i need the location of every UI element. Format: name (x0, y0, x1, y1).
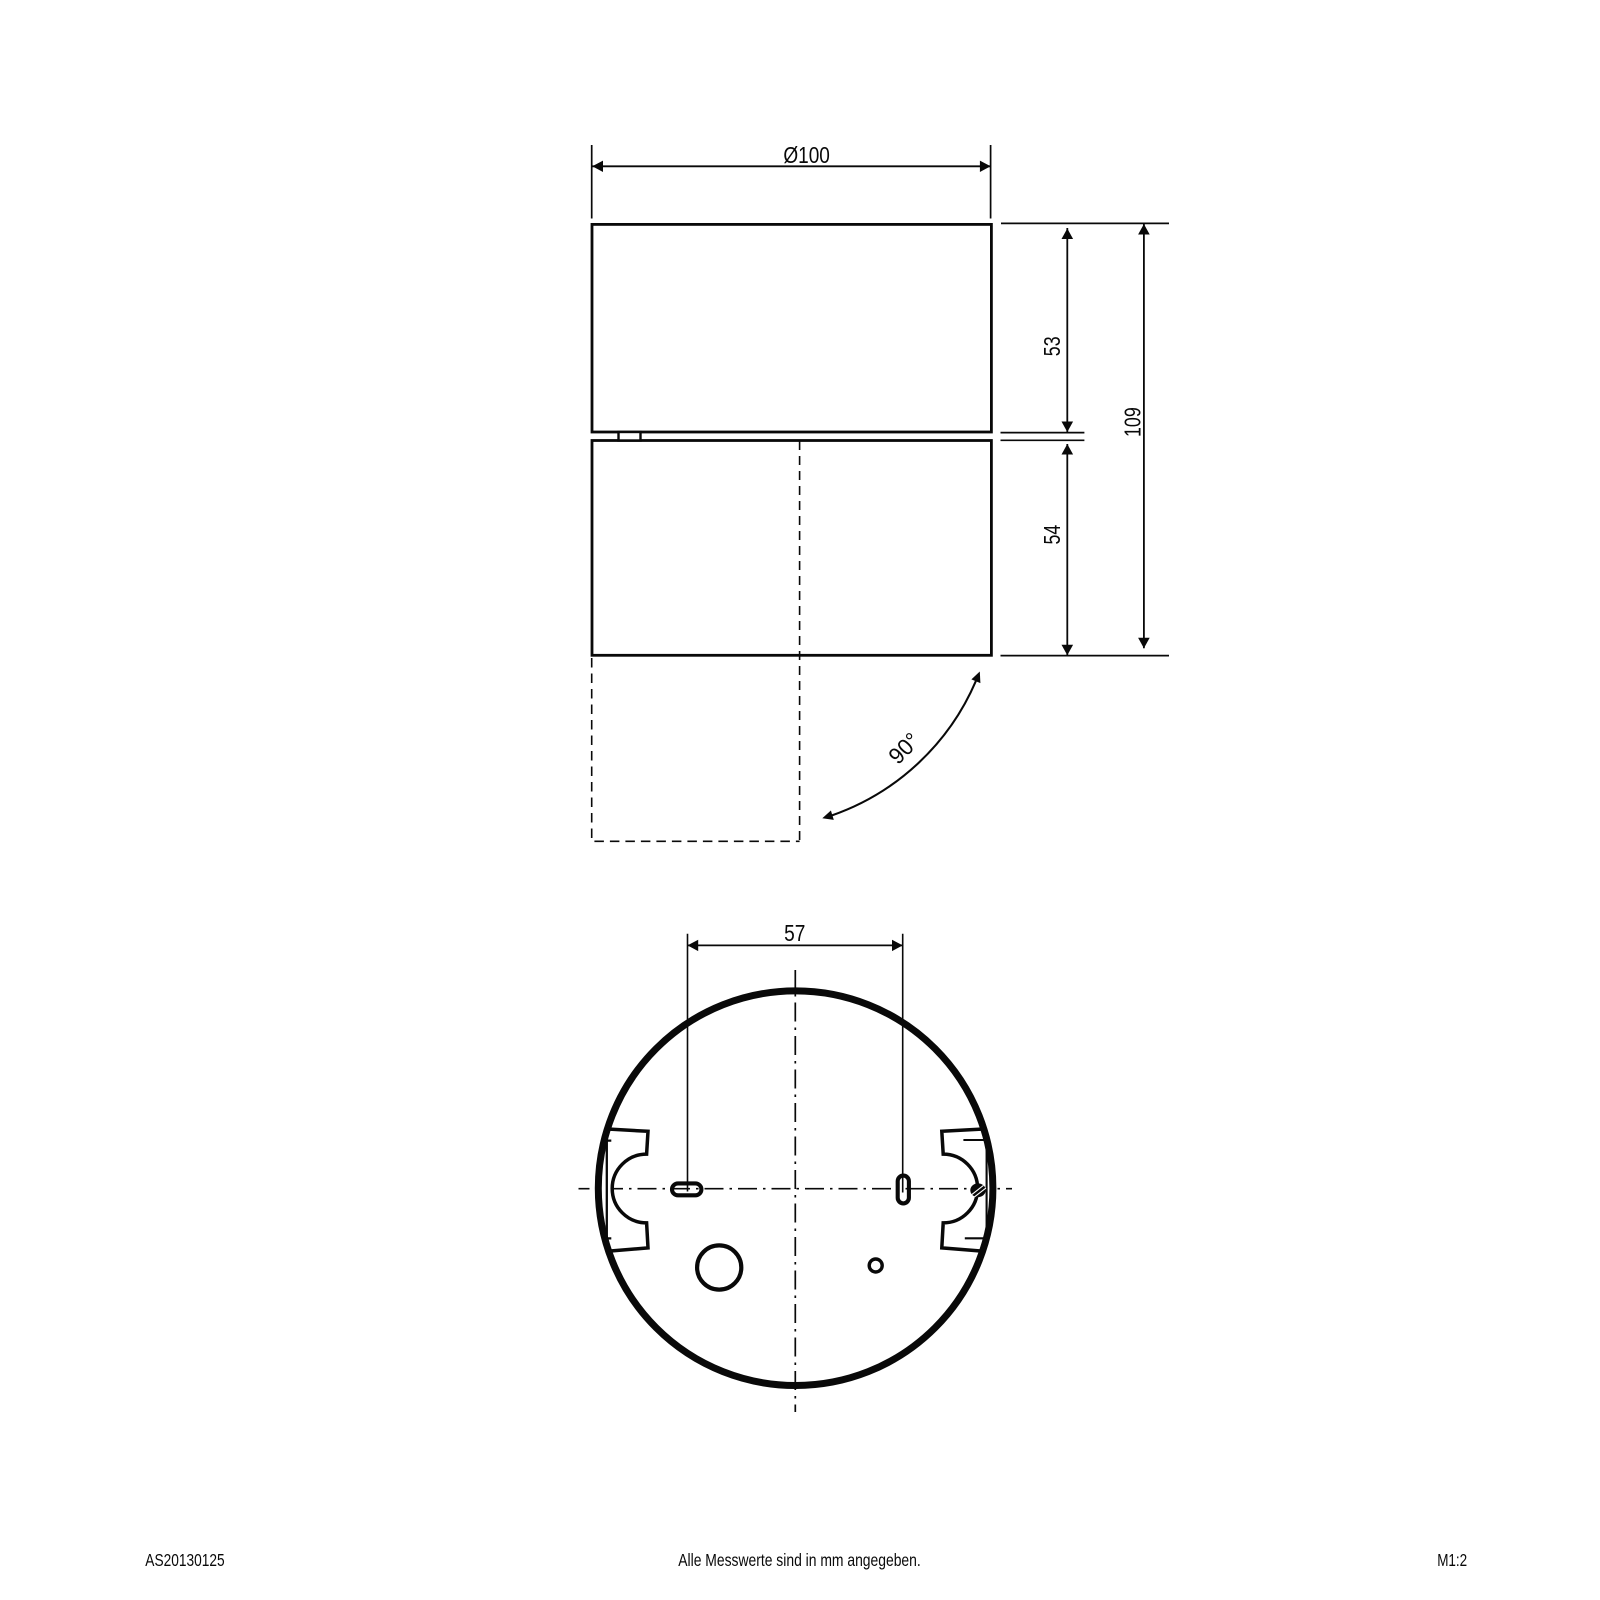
svg-text:54: 54 (1039, 525, 1065, 545)
svg-text:AS20130125: AS20130125 (145, 1550, 224, 1570)
svg-text:Alle Messwerte sind in mm ange: Alle Messwerte sind in mm angegeben. (678, 1550, 921, 1570)
svg-text:57: 57 (784, 920, 805, 946)
svg-text:Ø100: Ø100 (783, 142, 830, 168)
svg-text:53: 53 (1039, 336, 1065, 356)
svg-text:M1:2: M1:2 (1437, 1550, 1467, 1570)
svg-text:109: 109 (1119, 407, 1145, 437)
